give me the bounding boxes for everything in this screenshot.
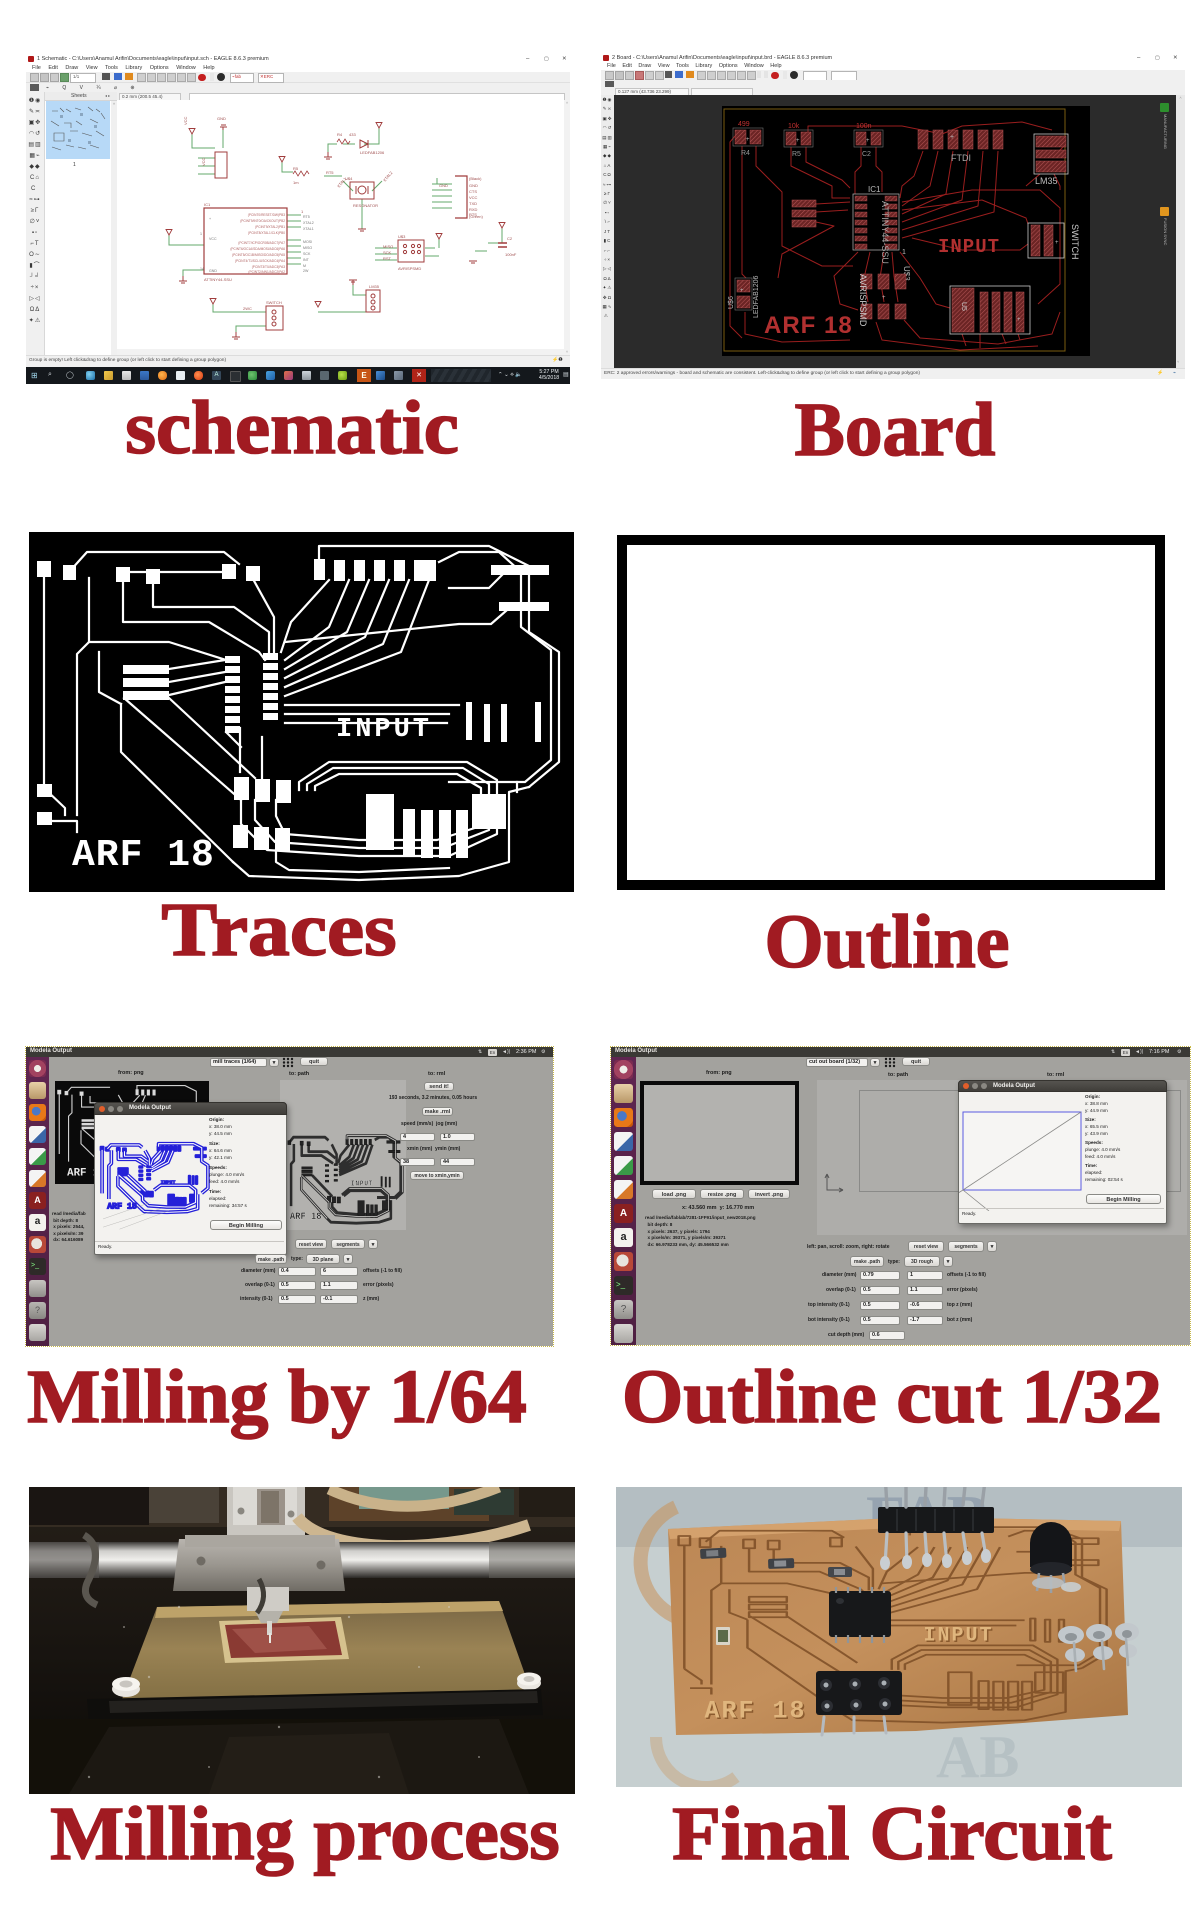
svg-text:INPUT: INPUT [924,1625,994,1648]
svg-text:XTAL2: XTAL2 [382,170,394,183]
svg-text:ARF 18: ARF 18 [705,1697,807,1726]
svg-text:LEDFAB1206: LEDFAB1206 [753,275,760,318]
svg-text:LM35: LM35 [369,284,380,289]
svg-text:VCC: VCC [201,157,206,166]
svg-text:GND: GND [217,116,226,121]
svg-text:U5: U5 [960,302,967,311]
svg-text:+: + [1017,317,1021,323]
svg-text:10k: 10k [788,123,800,130]
svg-text:GND: GND [439,183,448,188]
svg-text:(PCINT9/XTAL2)PB1: (PCINT9/XTAL2)PB1 [255,225,285,229]
svg-text:FTDI: FTDI [951,153,971,163]
svg-text:SWITCH: SWITCH [266,300,282,305]
svg-text:ATTINY44-SSU: ATTINY44-SSU [204,277,232,282]
svg-text:VCC: VCC [469,195,478,200]
svg-text:AB: AB [936,1724,1019,1787]
svg-text:+: + [1055,240,1059,246]
svg-text:R5: R5 [293,166,299,171]
svg-text:+: + [796,138,800,144]
svg-text:1: 1 [301,209,304,214]
svg-text:14: 14 [200,267,204,271]
svg-text:LM35: LM35 [1035,176,1058,186]
svg-text:SCK: SCK [303,252,311,256]
svg-text:AVRISPSMD: AVRISPSMD [398,266,421,271]
svg-text:(PCINT2/AIN1/ADC2)PA2: (PCINT2/AIN1/ADC2)PA2 [248,270,285,274]
svg-text:VCC: VCC [209,237,217,241]
svg-text:GND: GND [469,183,478,188]
svg-text:(PCINT6/OC1A/SDA/MOSI/ADC6)PA6: (PCINT6/OC1A/SDA/MOSI/ADC6)PA6 [230,247,285,251]
svg-text:(PCINT4/T1/SCL/USCK/ADC4)PA4: (PCINT4/T1/SCL/USCK/ADC4)PA4 [235,259,285,263]
svg-text:1m: 1m [293,180,299,185]
svg-text:R4: R4 [337,132,343,137]
svg-text:(PCINT8/XTAL1/CLK)PB0: (PCINT8/XTAL1/CLK)PB0 [248,231,285,235]
svg-text:MISO: MISO [303,246,312,250]
svg-text:XTAL1: XTAL1 [303,227,314,231]
svg-text:RST: RST [383,256,392,261]
svg-text:+: + [746,137,750,143]
svg-text:100n: 100n [856,123,872,130]
svg-text:INPUT: INPUT [351,1179,373,1187]
svg-text:1: 1 [200,232,202,236]
svg-text:U$3: U$3 [398,234,406,239]
svg-text:(PCINT5/OC1B/MISO/DO/ADC5)PA5: (PCINT5/OC1B/MISO/DO/ADC5)PA5 [232,253,285,257]
svg-text:(PCINT0/RESET/DW)PB3: (PCINT0/RESET/DW)PB3 [248,213,285,217]
svg-text:+: + [866,138,870,144]
svg-text:(PCINT9/INT0/OA/CKOUT)PB2: (PCINT9/INT0/OA/CKOUT)PB2 [240,219,285,223]
svg-text:TXD: TXD [469,201,477,206]
svg-text:ARF 18: ARF 18 [764,312,853,339]
svg-text:499: 499 [738,121,750,128]
svg-text:IC1: IC1 [868,185,881,194]
svg-text:1: 1 [902,249,906,256]
svg-text:M: M [303,264,306,268]
svg-text:INPUT: INPUT [938,236,1000,258]
svg-text:ARF 18: ARF 18 [290,1211,322,1223]
svg-text:GND: GND [209,269,217,273]
svg-text:VCC: VCC [183,116,188,125]
svg-text:100nF: 100nF [505,252,517,257]
svg-text:ARF 18: ARF 18 [107,1203,137,1212]
svg-text:XTAL2: XTAL2 [303,221,314,225]
svg-text:U$6: U$6 [728,296,735,309]
svg-text:+: + [209,217,211,221]
svg-text:(PCINT7/ICP/OCR0B/ADC7)PA7: (PCINT7/ICP/OCR0B/ADC7)PA7 [238,241,285,245]
svg-text:SCK: SCK [383,250,392,255]
svg-text:2WC: 2WC [243,306,252,311]
svg-text:C2: C2 [862,151,871,158]
svg-text:INPUT: INPUT [161,1180,176,1186]
svg-text:C2: C2 [507,236,513,241]
svg-text:R5: R5 [792,151,801,158]
svg-text:ARF 18: ARF 18 [72,834,215,877]
svg-text:SWITCH: SWITCH [1070,224,1080,260]
svg-text:R4: R4 [741,150,750,157]
svg-text:+: + [740,288,744,294]
svg-text:LEDFAB1206: LEDFAB1206 [360,150,385,155]
svg-text:RT5: RT5 [303,215,310,219]
svg-text:RT5: RT5 [326,170,334,175]
svg-text:+: + [882,295,886,301]
svg-text:INT: INT [303,258,310,262]
svg-text:2W: 2W [303,269,309,273]
svg-text:RTS: RTS [469,212,477,217]
svg-text:IC1: IC1 [204,202,211,207]
svg-text:433: 433 [349,132,356,137]
svg-text:RESONATOR: RESONATOR [353,203,378,208]
svg-text:+: + [950,134,954,141]
svg-text:(Black): (Black) [469,176,482,181]
svg-text:AVRISPSMD: AVRISPSMD [858,274,868,327]
svg-text:MISO: MISO [383,244,393,249]
svg-text:MOSI: MOSI [303,240,312,244]
svg-text:(PCINT3/T0/ADC3)PA3: (PCINT3/T0/ADC3)PA3 [252,265,285,269]
svg-text:INPUT: INPUT [336,715,432,745]
svg-text:CTS: CTS [469,189,477,194]
svg-text:ATTINY44-SSU: ATTINY44-SSU [880,201,890,264]
